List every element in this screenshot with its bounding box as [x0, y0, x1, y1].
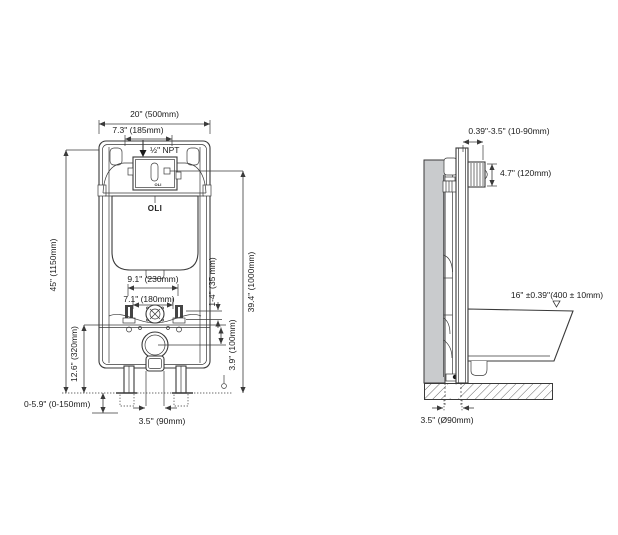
- drain-outlet: [142, 332, 168, 406]
- wall-section: [424, 160, 445, 383]
- water-inlet-arrow-icon: [140, 140, 147, 157]
- dim-actuator-size: 4.7" (120mm): [500, 169, 551, 178]
- side-view-drawing: [424, 142, 573, 412]
- dim-actuator-height: 39.4" (1000mm): [247, 252, 256, 313]
- mounting-plate: [84, 325, 226, 328]
- toilet-bowl: [468, 309, 573, 376]
- floor-hatch: [425, 383, 553, 406]
- dim-drain-diameter: 3.5" (Ø90mm): [420, 416, 473, 425]
- dim-access-width: 7.3" (185mm): [112, 126, 163, 135]
- dim-supply-thread: ½" NPT: [150, 146, 179, 155]
- level-marker-icon: [553, 301, 560, 307]
- floor-datum-icon: [222, 375, 227, 388]
- dim-wall-finish-range: 0.39"-3.5" (10-90mm): [468, 127, 549, 136]
- dim-bracket-height: 12.6" (320mm): [70, 326, 79, 382]
- dim-inner-bolt-spacing: 7.1" (180mm): [123, 295, 174, 304]
- brand-logo-small: OLI: [155, 183, 162, 187]
- flush-elbow: [146, 305, 164, 323]
- dim-total-height: 45" (1150mm): [49, 239, 58, 292]
- brand-logo: OLI: [148, 205, 163, 213]
- drawing-linework: [0, 0, 618, 535]
- dim-leg-adjust: 0-5.9" (0-150mm): [24, 400, 90, 409]
- dim-outer-bolt-spacing: 9.1" (230mm): [127, 275, 178, 284]
- adjustable-legs: [120, 366, 188, 406]
- dim-rim-height: 16" ±0.39''(400 ± 10mm): [511, 291, 603, 300]
- flush-button: [468, 162, 487, 187]
- dim-bolt-adjust: 1-4" (35 mm): [208, 257, 217, 306]
- dim-total-width: 20" (500mm): [130, 110, 179, 119]
- wall-panel: [456, 148, 468, 383]
- dim-drain-offset: 3.9" (100mm): [228, 319, 237, 370]
- installation-drawing: 20" (500mm) 7.3" (185mm) ½" NPT 9.1" (23…: [0, 0, 618, 535]
- dim-drain-width: 3.5'' (90mm): [139, 417, 186, 426]
